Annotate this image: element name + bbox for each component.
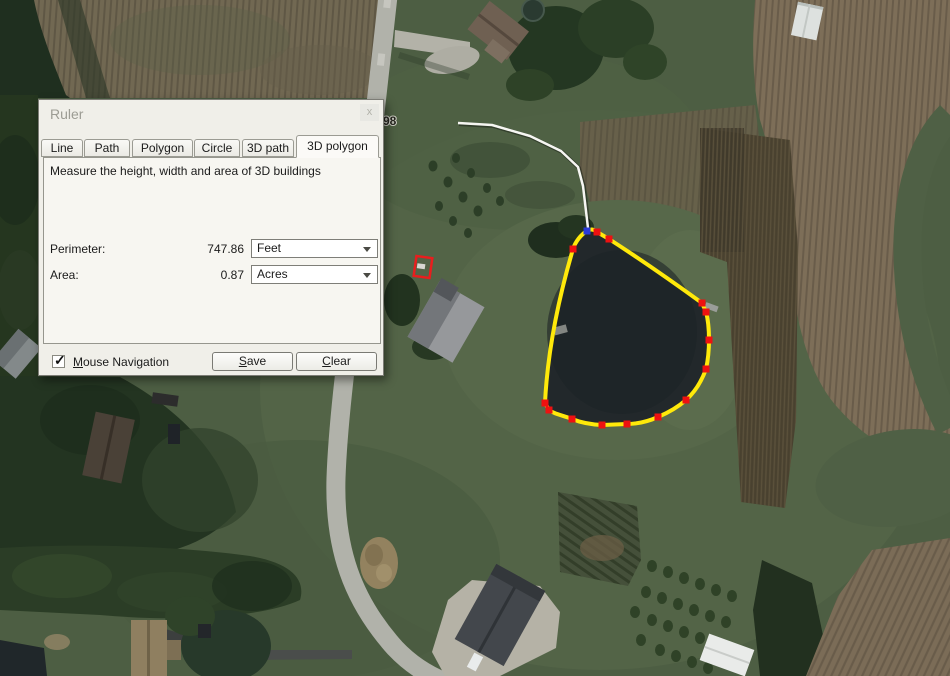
polygon-vertex[interactable] [594, 229, 601, 236]
car-dark-2 [168, 424, 180, 444]
polygon-vertex[interactable] [699, 300, 706, 307]
polygon-vertex[interactable] [570, 246, 577, 253]
polygon-vertex[interactable] [606, 236, 613, 243]
save-button[interactable]: Save [212, 352, 293, 371]
polygon-vertex[interactable] [546, 407, 553, 414]
mouse-navigation-label[interactable]: Mouse Navigation [73, 355, 169, 369]
tab-3d-path[interactable]: 3D path [242, 139, 294, 157]
polygon-start-vertex[interactable] [584, 228, 591, 235]
check-icon: ✓ [54, 352, 66, 369]
perimeter-value: 747.86 [144, 242, 244, 256]
polygon-vertex[interactable] [624, 421, 631, 428]
perimeter-unit-value: Feet [257, 241, 281, 255]
dialog-title: Ruler [50, 106, 83, 122]
polygon-vertex[interactable] [599, 422, 606, 429]
ruler-dialog: Ruler x Line Path Polygon Circle 3D path… [38, 99, 384, 376]
area-label: Area: [50, 268, 79, 282]
polygon-vertex[interactable] [703, 309, 710, 316]
area-unit-value: Acres [257, 267, 288, 281]
tab-line[interactable]: Line [41, 139, 83, 157]
trampoline [522, 0, 544, 21]
tab-panel: Measure the height, width and area of 3D… [43, 157, 381, 344]
road-label: 98 [383, 114, 397, 128]
polygon-vertex[interactable] [683, 397, 690, 404]
polygon-vertex[interactable] [706, 337, 713, 344]
area-value: 0.87 [144, 268, 244, 282]
polygon-vertex[interactable] [569, 416, 576, 423]
tab-polygon[interactable]: Polygon [132, 139, 193, 157]
area-unit-dropdown[interactable]: Acres [251, 265, 378, 284]
polygon-vertex[interactable] [542, 400, 549, 407]
clear-button[interactable]: Clear [296, 352, 377, 371]
car-driveway [198, 624, 211, 638]
chevron-down-icon [363, 273, 371, 278]
close-icon: x [367, 106, 373, 118]
chevron-down-icon [363, 247, 371, 252]
perimeter-label: Perimeter: [50, 242, 105, 256]
tab-description: Measure the height, width and area of 3D… [50, 164, 321, 178]
tab-path[interactable]: Path [84, 139, 130, 157]
mouse-navigation-checkbox[interactable]: ✓ [52, 355, 65, 368]
dialog-titlebar[interactable]: Ruler x [39, 100, 383, 134]
tab-circle[interactable]: Circle [194, 139, 240, 157]
polygon-vertex[interactable] [703, 366, 710, 373]
perimeter-unit-dropdown[interactable]: Feet [251, 239, 378, 258]
tab-3d-polygon[interactable]: 3D polygon [296, 135, 379, 158]
polygon-vertex[interactable] [655, 414, 662, 421]
close-button[interactable]: x [360, 104, 379, 121]
